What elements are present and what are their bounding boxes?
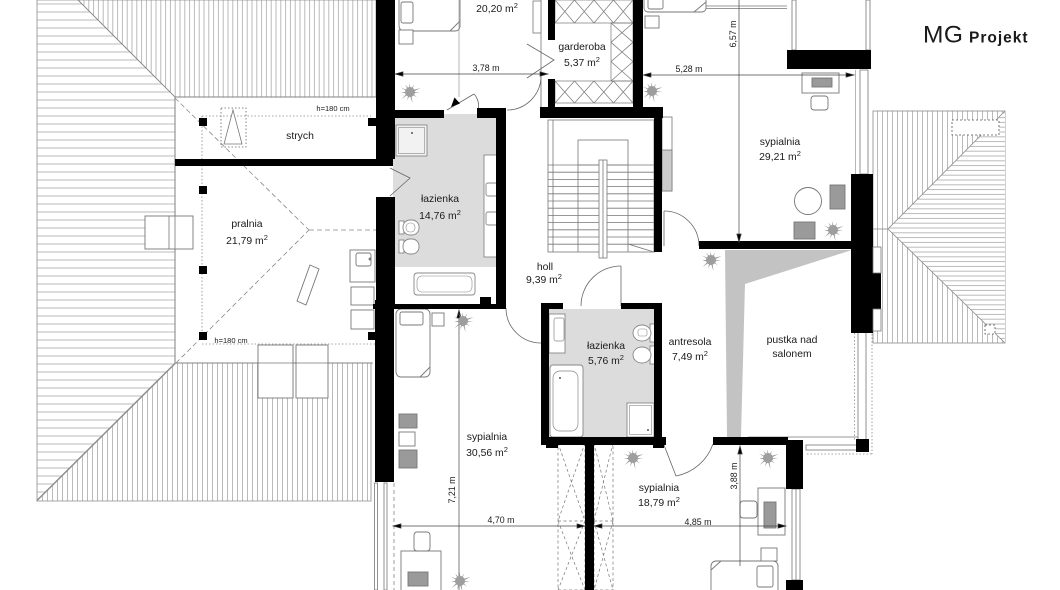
svg-text:5,37 m2: 5,37 m2 — [564, 55, 600, 69]
svg-text:3,88 m: 3,88 m — [729, 463, 739, 490]
svg-text:5,28 m: 5,28 m — [676, 64, 703, 74]
svg-text:9,39 m2: 9,39 m2 — [526, 272, 562, 286]
svg-text:18,79 m2: 18,79 m2 — [638, 495, 680, 509]
svg-text:14,76 m2: 14,76 m2 — [419, 208, 461, 222]
svg-text:4,85 m: 4,85 m — [685, 517, 712, 527]
svg-text:sypialnia: sypialnia — [760, 137, 801, 148]
svg-text:sypialnia: sypialnia — [639, 483, 680, 494]
svg-text:antresola: antresola — [669, 337, 712, 348]
svg-text:salonem: salonem — [772, 349, 811, 360]
svg-text:20,20 m2: 20,20 m2 — [476, 1, 518, 15]
svg-text:łazienka: łazienka — [421, 194, 459, 205]
svg-text:3,78 m: 3,78 m — [473, 63, 500, 73]
svg-text:sypialnia: sypialnia — [467, 432, 508, 443]
svg-text:strych: strych — [286, 131, 314, 142]
svg-text:4,70 m: 4,70 m — [488, 515, 515, 525]
svg-text:Projekt: Projekt — [969, 30, 1029, 47]
svg-text:7,49 m2: 7,49 m2 — [672, 349, 708, 363]
svg-text:holl: holl — [537, 262, 553, 273]
svg-text:MG: MG — [923, 22, 963, 49]
svg-text:5,76 m2: 5,76 m2 — [588, 353, 624, 367]
svg-text:pralnia: pralnia — [231, 219, 262, 230]
svg-text:30,56 m2: 30,56 m2 — [466, 445, 508, 459]
svg-text:6,57 m: 6,57 m — [728, 21, 738, 48]
svg-text:łazienka: łazienka — [587, 341, 625, 352]
svg-text:h=180 cm: h=180 cm — [316, 104, 349, 113]
svg-text:21,79 m2: 21,79 m2 — [226, 233, 268, 247]
svg-text:29,21 m2: 29,21 m2 — [759, 149, 801, 163]
svg-text:garderoba: garderoba — [558, 42, 606, 53]
svg-text:h=180 cm: h=180 cm — [214, 336, 247, 345]
svg-text:pustka nad: pustka nad — [767, 335, 818, 346]
svg-text:7,21 m: 7,21 m — [447, 477, 457, 504]
